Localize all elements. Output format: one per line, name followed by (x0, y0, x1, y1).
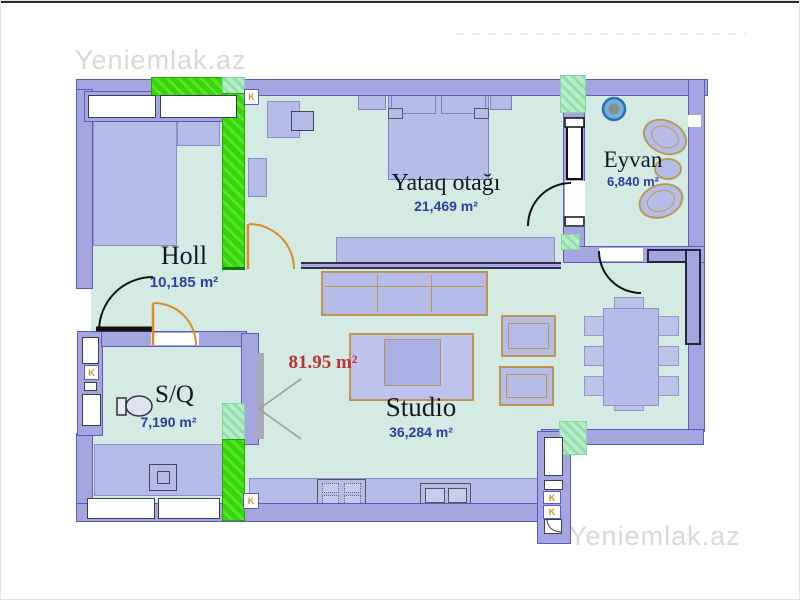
vent-shaft-label: K (243, 493, 259, 509)
green-wall-top (151, 77, 224, 96)
shaft-box (544, 437, 563, 476)
washing-machine-door (157, 471, 170, 484)
green-wall-bathroom (222, 439, 245, 521)
room-area-bathroom: 7,190 m² (111, 415, 226, 430)
mint-wall-shaft (559, 421, 587, 455)
bedroom-wardrobe-long (336, 237, 555, 263)
stove-burner (344, 483, 361, 493)
window-bottom-2 (158, 498, 220, 519)
shaft-box (544, 480, 563, 490)
room-area-studio: 36,284 m² (336, 425, 506, 440)
vent-shaft-label: K (84, 365, 99, 380)
sofa-divider (377, 275, 378, 312)
dining-chair (656, 316, 679, 336)
watermark-bottom-right: Yeniemlak.az (569, 521, 741, 552)
window-top-2 (160, 95, 237, 118)
sofa-seat-line (325, 286, 484, 287)
mint-wall-balcony-bottom (561, 234, 580, 250)
window-top-1 (88, 95, 156, 118)
wall-recess-vertical (685, 249, 701, 345)
shaft-box (82, 337, 99, 364)
armchair-2 (499, 366, 554, 406)
sofa (321, 271, 488, 316)
mint-wall-balcony-top (560, 75, 586, 113)
blanket-fold-right (474, 108, 489, 119)
door-opening-dining (599, 248, 643, 261)
room-label-studio: Studio (336, 393, 506, 421)
armchair-seat (508, 323, 549, 349)
bedroom-cabinet (248, 158, 267, 197)
door-opening-bathroom (151, 333, 199, 345)
room-area-balcony: 6,840 m² (585, 175, 681, 189)
bedroom-tv (291, 111, 314, 131)
window-bottom-1 (87, 498, 155, 519)
sofa-divider (431, 275, 432, 312)
image-top-edge (1, 1, 800, 3)
sink-basin (448, 488, 467, 503)
rug-inner (384, 339, 441, 386)
room-label-bathroom: S/Q (127, 382, 222, 408)
vent-shaft-label: K (543, 505, 561, 519)
vent-shaft-label: K (543, 491, 561, 504)
shaft-box (544, 519, 562, 534)
room-label-bedroom: Yataq otağı (356, 171, 536, 196)
stove-burner (322, 483, 339, 493)
dining-chair (656, 376, 679, 396)
blanket-fold-left (388, 108, 403, 119)
hall-wardrobe (93, 115, 177, 246)
hall-shelf (177, 118, 220, 146)
vent-shaft-label: K (244, 89, 259, 105)
armchair-seat (506, 374, 547, 398)
armchair-1 (501, 315, 556, 357)
washing-machine (149, 464, 177, 491)
door-opening-balcony (565, 181, 585, 227)
watermark-top-left: Yeniemlak.az (75, 45, 247, 76)
room-label-hall: Holl (129, 242, 239, 269)
floor-plan-image: Yeniemlak.az Yeniemlak.az (0, 0, 800, 600)
partition-bedroom-studio (301, 262, 561, 269)
sink-basin (425, 488, 445, 503)
room-area-bedroom: 21,469 m² (356, 199, 536, 214)
room-area-hall: 10,185 m² (119, 275, 249, 291)
balcony-wall-notch (688, 115, 701, 127)
room-label-balcony: Eyvan (585, 148, 681, 172)
dining-table (603, 308, 659, 406)
total-area-label: 81.95 m² (273, 352, 373, 374)
shaft-box (82, 394, 101, 426)
shaft-box (84, 382, 97, 391)
dining-chair (656, 346, 679, 366)
